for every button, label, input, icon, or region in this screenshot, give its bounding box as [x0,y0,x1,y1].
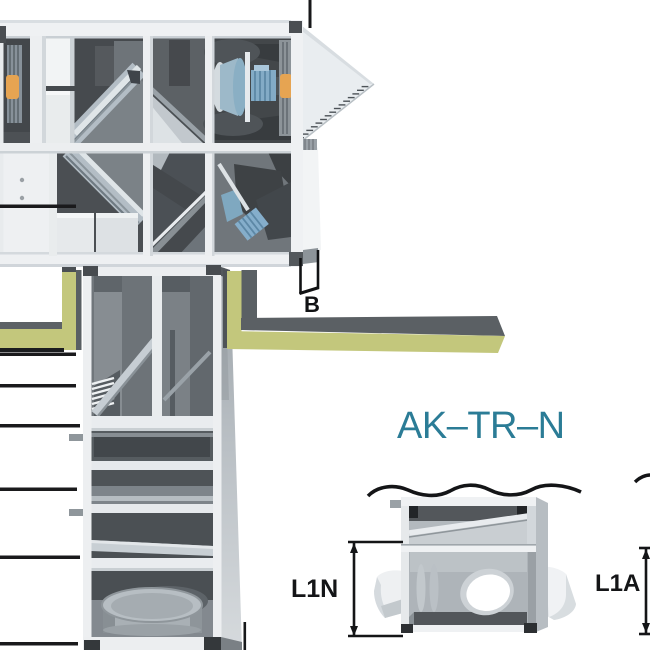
svg-text:L1A: L1A [595,570,640,597]
svg-text:AK–TR–N: AK–TR–N [397,405,565,447]
svg-text:L1N: L1N [291,575,338,603]
svg-text:B: B [304,292,320,317]
